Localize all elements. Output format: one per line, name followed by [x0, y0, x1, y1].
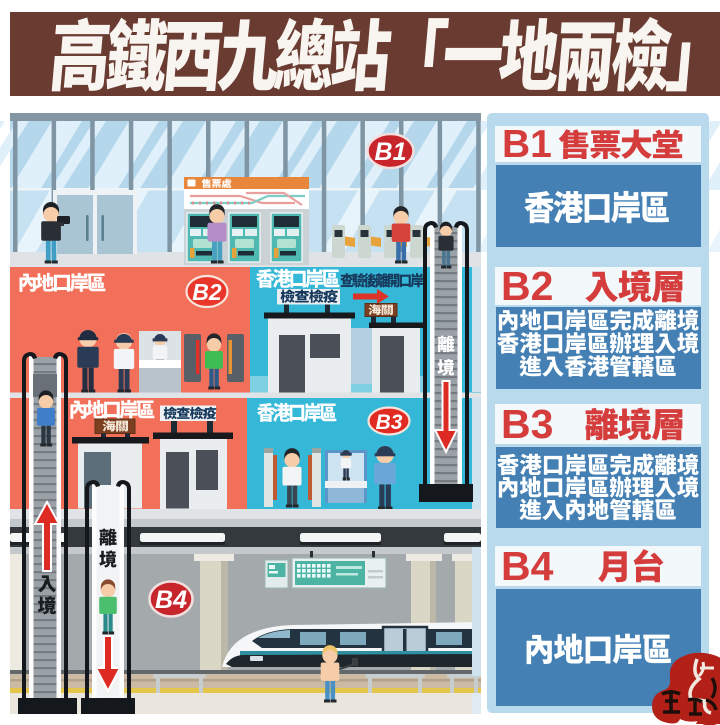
svg-text:B2: B2	[501, 263, 553, 309]
svg-text:B1: B1	[502, 123, 552, 166]
svg-text:B1: B1	[375, 138, 407, 166]
svg-text:B4: B4	[501, 543, 554, 589]
svg-text:B3: B3	[501, 401, 553, 447]
svg-text:B4: B4	[155, 586, 187, 614]
svg-text:B2: B2	[192, 279, 222, 305]
svg-text:B3: B3	[376, 411, 403, 434]
